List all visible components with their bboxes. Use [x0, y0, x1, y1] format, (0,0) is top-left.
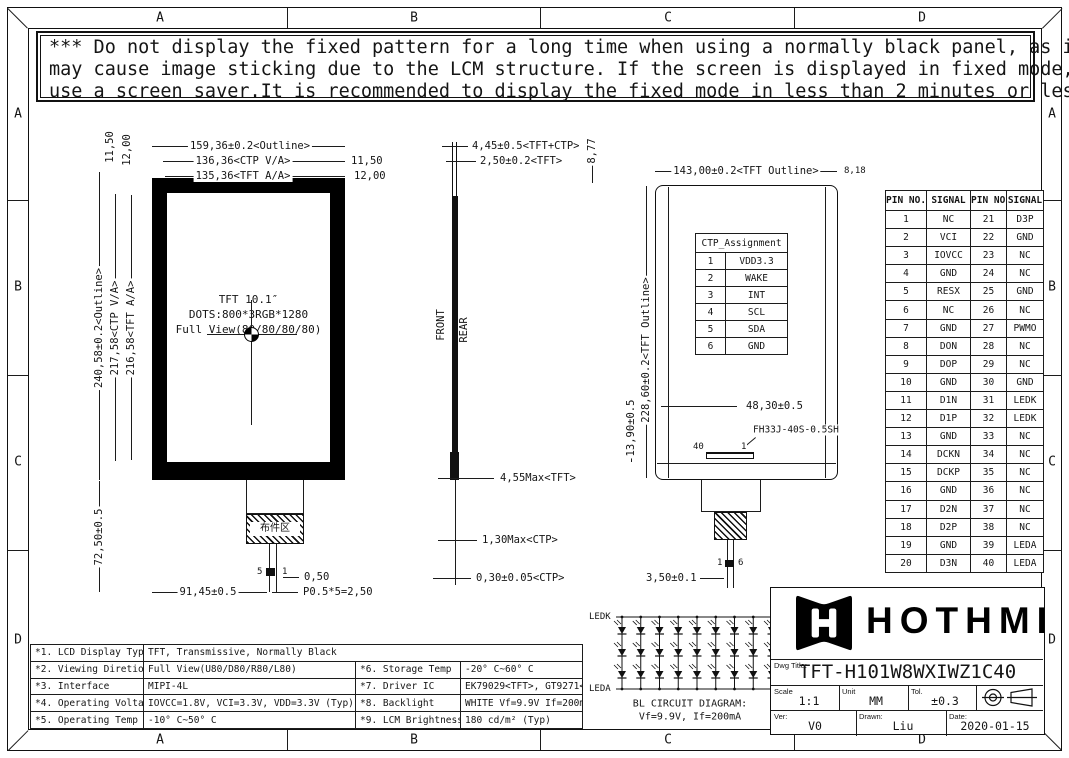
band-tick [794, 8, 795, 28]
dimension-label: 8,18 [843, 166, 867, 176]
rear-fpc-tab [701, 480, 761, 512]
band-tick [1042, 375, 1062, 376]
pin-no-cell: 20 [886, 554, 927, 572]
spec-value: IOVCC=1.8V, VCI=3.3V, VDD=3.3V (Typ) [144, 695, 356, 712]
grid-col-label: B [410, 733, 418, 748]
band-tick [8, 550, 28, 551]
leda-label: LEDA [588, 684, 612, 694]
table-row: 4SCL [696, 304, 788, 321]
ctp-signal-cell: WAKE [726, 270, 788, 287]
dimension-label: 12,00 [353, 170, 387, 182]
table-row: 14DCKN34NC [886, 446, 1044, 464]
grid-row-label: B [14, 280, 22, 295]
dimension-line [438, 478, 494, 479]
ctp-signal-cell: INT [726, 287, 788, 304]
pin-signal-cell: D2N [927, 500, 971, 518]
pin-assignment-table: PIN NO. SIGNAL PIN NO. SIGNAL 1NC21D3P2V… [885, 190, 1044, 573]
title-block-line [839, 685, 840, 710]
spec-label: *4. Operating Voltage [31, 695, 144, 712]
grid-row-label: D [14, 633, 22, 648]
rear-side-label: REAR [458, 315, 470, 344]
side-view-bottom-block [450, 452, 459, 480]
pin-no-cell: 37 [971, 500, 1007, 518]
bl-circuit-caption: Vf=9.9V, If=200mA [637, 712, 743, 723]
ver-value: V0 [808, 719, 822, 733]
dimension-label: 13,90±0.5 [625, 398, 637, 459]
dimension-label: 91,45±0.5 [178, 586, 239, 598]
dimension-label: 217,58<CTP V/A> [109, 279, 121, 378]
table-row: 8DON28NC [886, 337, 1044, 355]
tol-label: Tol. [911, 687, 923, 696]
component-area-label: 布件区 [250, 522, 300, 536]
dimension-line [272, 592, 298, 593]
pin-no-cell: 14 [886, 446, 927, 464]
pin-no-cell: 31 [971, 391, 1007, 409]
table-row: 2VCI22GND [886, 229, 1044, 247]
pin-signal-cell: RESX [927, 283, 971, 301]
front-side-label: FRONT [435, 307, 447, 343]
pin-number-label: 6 [737, 558, 744, 568]
pin-no-cell: 40 [971, 554, 1007, 572]
pin-signal-cell: D3N [927, 554, 971, 572]
pin-table-header: PIN NO. [971, 191, 1007, 211]
warning-line: may cause image sticking due to the LCM … [49, 59, 1022, 81]
tol-value: ±0.3 [931, 694, 959, 708]
ctp-table-body: 1VDD3.32WAKE3INT4SCL5SDA6GND [696, 253, 788, 355]
pin-table-header: PIN NO. [886, 191, 927, 211]
pin-no-cell: 19 [886, 536, 927, 554]
pin-no-cell: 27 [971, 319, 1007, 337]
brand-wordmark: HOTHMI [866, 600, 1054, 642]
ctp-pin-no-cell: 1 [696, 253, 726, 270]
pin-signal-cell: GND [927, 373, 971, 391]
pin-number-label: 1 [740, 442, 747, 452]
ctp-signal-cell: GND [726, 338, 788, 355]
warning-line: use a screen saver.It is recommended to … [49, 81, 1022, 103]
fpc-pin-block [266, 568, 275, 576]
table-row: 10GND30GND [886, 373, 1044, 391]
ctp-signal-cell: SCL [726, 304, 788, 321]
ctp-pin-no-cell: 5 [696, 321, 726, 338]
scale-label: Scale [774, 687, 793, 696]
pin-no-cell: 10 [886, 373, 927, 391]
pin-signal-cell: GND [927, 265, 971, 283]
title-block-line [946, 710, 947, 736]
pin-signal-cell: NC [1007, 464, 1044, 482]
title-block-line [771, 710, 1043, 711]
pin-signal-cell: NC [1007, 337, 1044, 355]
ctp-signal-cell: SDA [726, 321, 788, 338]
dwg-title: TFT-H101W8WXIWZ1C40 [771, 661, 1044, 683]
panel-dots-label: DOTS:800*3RGB*1280 [166, 307, 331, 322]
drawn-value: Liu [893, 719, 914, 733]
pin-signal-cell: D1P [927, 410, 971, 428]
spec-label: *8. Backlight [356, 695, 461, 712]
pin-no-cell: 24 [971, 265, 1007, 283]
band-tick [287, 8, 288, 28]
pin-no-cell: 22 [971, 229, 1007, 247]
drawn-label: Drawn: [859, 712, 883, 721]
title-block-line [976, 685, 977, 710]
pin-signal-cell: GND [1007, 373, 1044, 391]
dimension-label: 11,50 [104, 129, 116, 165]
pin-no-cell: 7 [886, 319, 927, 337]
ctp-pin-no-cell: 3 [696, 287, 726, 304]
pin-signal-cell: DOP [927, 355, 971, 373]
pin-signal-cell: LEDA [1007, 536, 1044, 554]
pin-signal-cell: DON [927, 337, 971, 355]
pin-no-cell: 2 [886, 229, 927, 247]
grid-col-label: D [918, 11, 926, 26]
spec-table: *1. LCD Display Type TFT, Transmissive, … [30, 644, 583, 729]
pin-number-label: 40 [692, 442, 705, 452]
dimension-label: 228,60±0.2<TFT Outline> [640, 275, 652, 424]
pin-signal-cell: DCKN [927, 446, 971, 464]
scale-value: 1:1 [799, 694, 820, 708]
ctp-table-title: CTP_Assignment [696, 234, 788, 253]
rear-inner-line [657, 463, 836, 464]
pin-signal-cell: NC [1007, 265, 1044, 283]
rear-inner-line [668, 187, 669, 478]
pin-no-cell: 25 [971, 283, 1007, 301]
third-angle-projection-icon [980, 687, 1040, 708]
grid-row-label: C [1048, 455, 1056, 470]
dimension-line [433, 578, 471, 579]
pin-no-cell: 23 [971, 247, 1007, 265]
pin-signal-cell: GND [927, 319, 971, 337]
table-row: 7GND27PWMO [886, 319, 1044, 337]
table-row: 12D1P32LEDK [886, 410, 1044, 428]
dimension-label: 11,50 [350, 155, 384, 167]
pin-no-cell: 15 [886, 464, 927, 482]
pin-no-cell: 17 [886, 500, 927, 518]
dimension-label: 8,77 [586, 136, 598, 165]
pin-no-cell: 26 [971, 301, 1007, 319]
dimension-label: P0.5*5=2,50 [302, 586, 374, 598]
table-row: 4GND24NC [886, 265, 1044, 283]
pin-signal-cell: IOVCC [927, 247, 971, 265]
pin-signal-cell: NC [1007, 446, 1044, 464]
pin-signal-cell: D1N [927, 391, 971, 409]
pin-signal-cell: NC [1007, 247, 1044, 265]
pin-no-cell: 34 [971, 446, 1007, 464]
grid-col-label: C [664, 733, 672, 748]
pin-signal-cell: GND [927, 536, 971, 554]
dimension-label: 0,50 [303, 571, 330, 583]
dimension-label: 3,50±0.1 [645, 572, 698, 584]
band-tick [540, 8, 541, 28]
pin-signal-cell: GND [1007, 229, 1044, 247]
fpc-cable-line [276, 544, 277, 592]
table-row: 9DOP29NC [886, 355, 1044, 373]
band-tick [1042, 550, 1062, 551]
pin-signal-cell: GND [927, 428, 971, 446]
table-row: 5SDA [696, 321, 788, 338]
grid-col-label: C [664, 11, 672, 26]
pin-no-cell: 3 [886, 247, 927, 265]
spec-value: EK79029<TFT>, GT9271<CTP> [461, 678, 583, 695]
band-tick [1042, 200, 1062, 201]
table-row: 16GND36NC [886, 482, 1044, 500]
title-block-line [771, 685, 1043, 686]
pin-signal-cell: D3P [1007, 211, 1044, 229]
dimension-line [442, 146, 468, 147]
pin-no-cell: 4 [886, 265, 927, 283]
rear-cable-pin-block [725, 560, 734, 567]
pin-no-cell: 32 [971, 410, 1007, 428]
pin-no-cell: 12 [886, 410, 927, 428]
ledk-label: LEDK [588, 612, 612, 622]
spec-value: TFT, Transmissive, Normally Black [144, 645, 583, 662]
pin-signal-cell: NC [927, 211, 971, 229]
dimension-label: 4,45±0.5<TFT+CTP> [471, 140, 580, 152]
pin-no-cell: 16 [886, 482, 927, 500]
spec-value: -10° C~50° C [144, 712, 356, 729]
ver-label: Ver: [774, 712, 787, 721]
drawing-sheet: A B C D A B C D A B C D A B C D *** Do n… [0, 0, 1069, 758]
pin-signal-cell: NC [1007, 355, 1044, 373]
hothmi-logo-icon [795, 595, 853, 651]
dimension-label: 135,36<TFT A/A> [194, 170, 293, 182]
ctp-pin-no-cell: 6 [696, 338, 726, 355]
pin-table-header: SIGNAL [1007, 191, 1044, 211]
pin-no-cell: 33 [971, 428, 1007, 446]
table-row: 18D2P38NC [886, 518, 1044, 536]
pin-no-cell: 30 [971, 373, 1007, 391]
dimension-label: 72,50±0.5 [93, 507, 105, 568]
center-mark-icon [244, 327, 259, 342]
pin-table-header: SIGNAL [927, 191, 971, 211]
spec-label: *3. Interface [31, 678, 144, 695]
pin-no-cell: 38 [971, 518, 1007, 536]
side-view-fpc-line [455, 480, 456, 585]
pin-no-cell: 35 [971, 464, 1007, 482]
pin-signal-cell: PWMO [1007, 319, 1044, 337]
bl-circuit-svg [612, 608, 782, 698]
table-row: 11D1N31LEDK [886, 391, 1044, 409]
spec-label: *1. LCD Display Type [31, 645, 144, 662]
band-tick [540, 730, 541, 750]
pin-no-cell: 21 [971, 211, 1007, 229]
table-row: 15DCKP35NC [886, 464, 1044, 482]
pin-signal-cell: LEDK [1007, 410, 1044, 428]
pin-signal-cell: NC [1007, 301, 1044, 319]
spec-label: *6. Storage Temp [356, 661, 461, 678]
table-row: 17D2N37NC [886, 500, 1044, 518]
ctp-signal-cell: VDD3.3 [726, 253, 788, 270]
table-row: 1VDD3.3 [696, 253, 788, 270]
pin-number-label: 5 [256, 567, 263, 577]
ctp-assignment-table: CTP_Assignment 1VDD3.32WAKE3INT4SCL5SDA6… [695, 233, 788, 355]
spec-label: *5. Operating Temp [31, 712, 144, 729]
pin-signal-cell: LEDA [1007, 554, 1044, 572]
title-block: HOTHMI Dwg Title: TFT-H101W8WXIWZ1C40 Sc… [770, 587, 1045, 735]
spec-value: MIPI-4L [144, 678, 356, 695]
spec-label: *2. Viewing Diretion [31, 661, 144, 678]
pin-signal-cell: NC [927, 301, 971, 319]
pin-no-cell: 5 [886, 283, 927, 301]
fpc-connector [706, 452, 754, 459]
panel-size-label: TFT 10.1″ [166, 292, 331, 307]
pin-no-cell: 18 [886, 518, 927, 536]
pin-signal-cell: NC [1007, 518, 1044, 536]
dimension-label: 48,30±0.5 [745, 400, 804, 412]
title-block-line [771, 659, 1043, 660]
dimension-label: 4,55Max<TFT> [499, 472, 577, 484]
crosshair-line [251, 300, 252, 425]
side-view-ctp-layer [452, 142, 457, 198]
pin-signal-cell: NC [1007, 482, 1044, 500]
pin-no-cell: 13 [886, 428, 927, 446]
ctp-pin-no-cell: 4 [696, 304, 726, 321]
spec-value: -20° C~60° C [461, 661, 583, 678]
dimension-label: 216,58<TFT A/A> [125, 279, 137, 378]
band-tick [8, 375, 28, 376]
band-tick [287, 730, 288, 750]
unit-value: MM [869, 694, 883, 708]
date-value: 2020-01-15 [960, 719, 1029, 733]
dimension-label: 136,36<CTP V/A> [194, 155, 293, 167]
dimension-label: 159,36±0.2<Outline> [188, 140, 312, 152]
pin-signal-cell: VCI [927, 229, 971, 247]
dimension-line [661, 406, 737, 407]
dimension-line [700, 578, 724, 579]
pin-signal-cell: GND [927, 482, 971, 500]
pin-no-cell: 9 [886, 355, 927, 373]
grid-row-label: A [14, 107, 22, 122]
table-row: 3INT [696, 287, 788, 304]
grid-row-label: A [1048, 107, 1056, 122]
pin-no-cell: 36 [971, 482, 1007, 500]
pin-no-cell: 39 [971, 536, 1007, 554]
bl-circuit-caption: BL CIRCUIT DIAGRAM: [631, 699, 749, 710]
dimension-label: 2,50±0.2<TFT> [479, 155, 563, 167]
title-block-line [856, 710, 857, 736]
grid-row-label: B [1048, 280, 1056, 295]
pin-table-body: 1NC21D3P2VCI22GND3IOVCC23NC4GND24NC5RESX… [886, 211, 1044, 573]
table-row: 13GND33NC [886, 428, 1044, 446]
table-row: 2WAKE [696, 270, 788, 287]
dimension-line [446, 161, 476, 162]
spec-label: *7. Driver IC [356, 678, 461, 695]
pin-no-cell: 6 [886, 301, 927, 319]
dimension-label: 0,30±0.05<CTP> [475, 572, 566, 584]
fpc-tab [246, 480, 304, 514]
dimension-line [438, 540, 477, 541]
pin-signal-cell: NC [1007, 428, 1044, 446]
table-row: 1NC21D3P [886, 211, 1044, 229]
connector-name-label: FH33J-40S-0.5SH [752, 425, 840, 436]
table-row: 5RESX25GND [886, 283, 1044, 301]
spec-value: WHITE Vf=9.9V If=200mA(Typ) [461, 695, 583, 712]
table-row: 20D3N40LEDA [886, 554, 1044, 572]
dimension-line [283, 577, 299, 578]
pin-no-cell: 8 [886, 337, 927, 355]
grid-row-label: C [14, 455, 22, 470]
spec-value: 180 cd/m² (Typ) [461, 712, 583, 729]
grid-col-label: B [410, 11, 418, 26]
pin-no-cell: 11 [886, 391, 927, 409]
dimension-label: 240,58±0.2<Outline> [93, 266, 105, 390]
ctp-pin-no-cell: 2 [696, 270, 726, 287]
table-row: 6GND [696, 338, 788, 355]
pin-signal-cell: GND [1007, 283, 1044, 301]
dimension-label: 12,00 [121, 132, 133, 168]
dimension-label: 1,30Max<CTP> [481, 534, 559, 546]
rear-stiffener-box [714, 512, 747, 540]
table-row: 6NC26NC [886, 301, 1044, 319]
pin-number-label: 1 [716, 558, 723, 568]
spec-value: Full View(U80/D80/R80/L80) [144, 661, 356, 678]
warning-line: *** Do not display the fixed pattern for… [49, 37, 1022, 59]
pin-signal-cell: LEDK [1007, 391, 1044, 409]
grid-col-label: A [156, 733, 164, 748]
pin-signal-cell: D2P [927, 518, 971, 536]
table-row: 3IOVCC23NC [886, 247, 1044, 265]
table-row: 19GND39LEDA [886, 536, 1044, 554]
pin-no-cell: 1 [886, 211, 927, 229]
title-block-line [908, 685, 909, 710]
warning-note: *** Do not display the fixed pattern for… [36, 31, 1035, 102]
pin-signal-cell: NC [1007, 500, 1044, 518]
pin-signal-cell: DCKP [927, 464, 971, 482]
unit-label: Unit [842, 687, 855, 696]
pin-no-cell: 29 [971, 355, 1007, 373]
band-tick [8, 200, 28, 201]
grid-col-label: A [156, 11, 164, 26]
spec-label: *9. LCM Brightness [356, 712, 461, 729]
dimension-label: 143,00±0.2<TFT Outline> [671, 165, 820, 177]
pin-number-label: 1 [281, 567, 288, 577]
pin-no-cell: 28 [971, 337, 1007, 355]
